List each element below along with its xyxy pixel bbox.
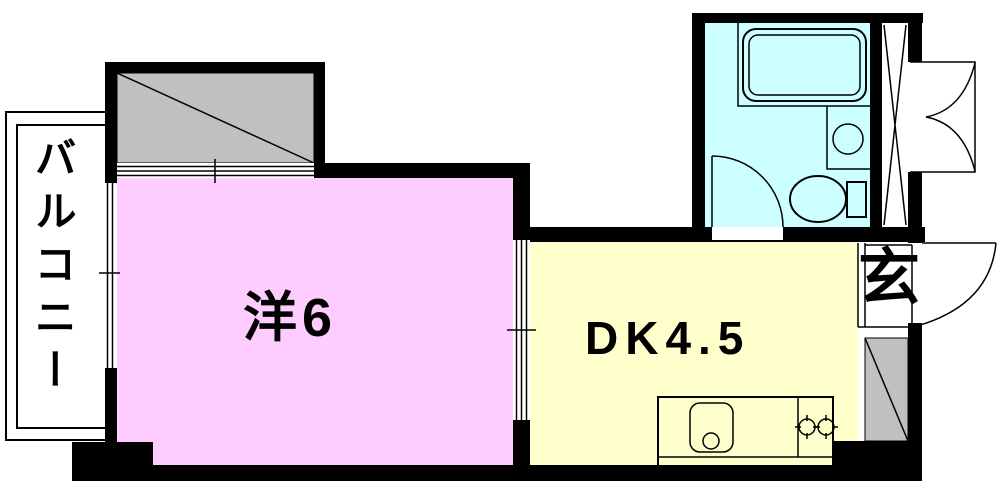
wall-segment [908,13,922,62]
wall-segment [105,368,117,442]
wall-segment [692,13,923,23]
double-door-icon [910,62,975,172]
western-room-label: 洋6 [243,290,337,347]
double-doors [910,62,975,172]
wall-segment [513,420,530,465]
wall-segment [833,441,913,481]
wall-segment [908,172,922,243]
wall-segment [105,62,325,73]
toilet-icon [790,176,846,222]
bathroom-door-opening [712,227,783,240]
balcony-label: バルコニー [30,136,74,401]
wall-segment [692,13,705,240]
wall-segment [314,163,530,178]
door-swing-arc [926,117,975,171]
floor-plan-drawing [0,0,1007,491]
wall-segment [72,442,153,481]
wall-segment [870,23,882,227]
pipe-shaft [882,23,908,227]
toilet-tank [847,182,866,217]
wall-segment [314,62,325,163]
door-swing-arc [926,63,975,117]
entrance-label: 玄 [858,246,920,311]
wall-segment [513,163,530,240]
entrance-door-swing-icon [917,243,996,326]
floor-plan: バルコニー 洋6 DK4.5 玄 [0,0,1007,491]
dining-kitchen-label: DK4.5 [585,314,750,362]
wall-segment [105,163,117,183]
